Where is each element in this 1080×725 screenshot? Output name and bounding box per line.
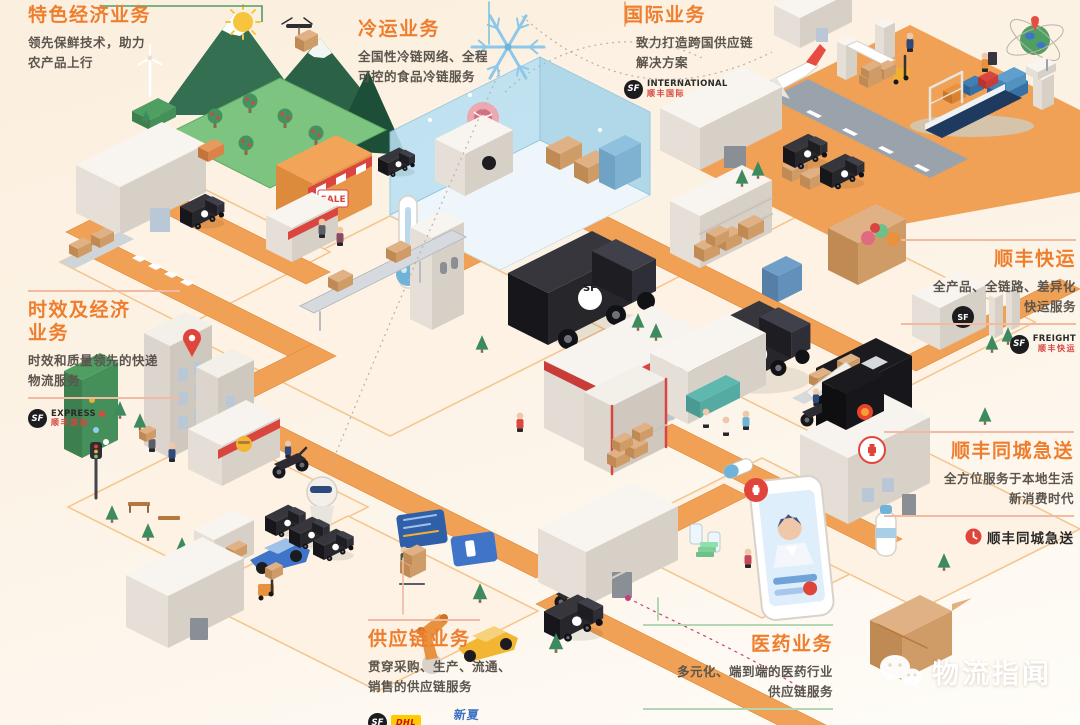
desc-line: 可控的食品冷链服务 xyxy=(358,69,475,84)
label-desc: 致力打造跨国供应链 解决方案 xyxy=(636,33,753,72)
desc-line: 农产品上行 xyxy=(28,55,93,70)
desc-line: 供应链服务 xyxy=(768,684,833,699)
label-intracity-delivery: 顺丰同城急送 全方位服务于本地生活 新消费时代 顺丰同城急送 xyxy=(884,424,1074,547)
label-desc: 多元化、端到端的医药行业 供应链服务 xyxy=(643,662,833,701)
desc-line: 物流服务 xyxy=(28,373,80,388)
label-title: 顺丰快运 xyxy=(901,248,1076,271)
sf-logo-icon: SF xyxy=(624,80,643,99)
desc-line: 解决方案 xyxy=(636,55,688,70)
label-cold-chain: 冷运业务 全国性冷链网络、全程 可控的食品冷链服务 xyxy=(358,18,488,86)
desc-line: 全产品、全链路、差异化 xyxy=(933,279,1076,294)
label-title: 时效及经济 业务 xyxy=(28,299,180,345)
label-pharma: 医药业务 多元化、端到端的医药行业 供应链服务 xyxy=(643,617,833,717)
label-desc: 时效和质量领先的快递 物流服务 xyxy=(28,351,180,390)
sf-logo-icon: SF xyxy=(368,713,387,725)
desc-line: 销售的供应链服务 xyxy=(368,679,472,694)
title-line: 业务 xyxy=(28,322,69,344)
watermark: 物流指闻 xyxy=(878,652,1052,691)
divider-line xyxy=(28,397,180,399)
divider-line xyxy=(901,323,1076,325)
logo-wordmark: INTERNATIONAL 顺丰国际 xyxy=(647,80,728,98)
xinxiahui-logo: 新夏晖 xyxy=(451,706,482,725)
divider-line xyxy=(28,290,180,292)
desc-line: 全方位服务于本地生活 xyxy=(944,471,1074,486)
divider-line xyxy=(368,619,480,621)
title-line: 时效及经济 xyxy=(28,299,131,321)
supply-partner-logos: SF DHL 新夏晖 xyxy=(368,706,480,725)
desc-line: 新消费时代 xyxy=(1009,491,1074,506)
desc-line: 全国性冷链网络、全程 xyxy=(358,49,488,64)
desc-line: 领先保鲜技术，助力 xyxy=(28,35,145,50)
sf-intracity-logo: 顺丰同城急送 xyxy=(884,527,1074,547)
label-fresh-economy: 特色经济业务 领先保鲜技术，助力 农产品上行 xyxy=(28,4,151,72)
scene-text: SF xyxy=(583,283,597,294)
logo-text: 顺丰同城急送 xyxy=(987,527,1074,547)
label-desc: 全产品、全链路、差异化 快运服务 xyxy=(901,277,1076,316)
divider-line xyxy=(643,708,833,710)
desc-line: 时效和质量领先的快递 xyxy=(28,353,158,368)
divider-line xyxy=(884,431,1074,433)
sf-express-logo: SF EXPRESS 顺丰速运 xyxy=(28,409,180,428)
logo-cn: 顺丰快运 xyxy=(1033,345,1076,354)
sf-logo-icon: SF xyxy=(1010,335,1029,354)
sf-logo-icon: SF xyxy=(28,409,47,428)
label-desc: 全国性冷链网络、全程 可控的食品冷链服务 xyxy=(358,47,488,86)
label-title: 特色经济业务 xyxy=(28,4,151,27)
clock-icon xyxy=(965,528,982,545)
label-desc: 领先保鲜技术，助力 农产品上行 xyxy=(28,33,151,72)
label-title: 供应链业务 xyxy=(368,628,480,651)
divider-line xyxy=(884,515,1074,517)
label-title: 顺丰同城急送 xyxy=(884,440,1074,463)
label-desc: 贯穿采购、生产、流通、 销售的供应链服务 xyxy=(368,657,480,696)
dhl-logo: DHL xyxy=(391,715,421,725)
desc-line: 贯穿采购、生产、流通、 xyxy=(368,659,511,674)
sf-international-logo: SF INTERNATIONAL 顺丰国际 xyxy=(624,80,753,99)
divider-line xyxy=(901,239,1076,241)
logo-cn: 顺丰国际 xyxy=(647,90,728,99)
desc-line: 快运服务 xyxy=(1024,299,1076,314)
label-supply-chain: 供应链业务 贯穿采购、生产、流通、 销售的供应链服务 SF DHL 新夏晖 xyxy=(368,612,480,725)
label-title: 国际业务 xyxy=(624,4,753,27)
label-express-economy: 时效及经济 业务 时效和质量领先的快递 物流服务 SF EXPRESS 顺丰速运 xyxy=(28,283,180,428)
label-international: 国际业务 致力打造跨国供应链 解决方案 SF INTERNATIONAL 顺丰国… xyxy=(624,4,753,99)
logo-wordmark: EXPRESS 顺丰速运 xyxy=(51,410,96,428)
label-sf-freight: 顺丰快运 全产品、全链路、差异化 快运服务 SF FREIGHT 顺丰快运 xyxy=(901,232,1076,354)
logo-wordmark: FREIGHT 顺丰快运 xyxy=(1033,335,1076,353)
logo-cn: 顺丰速运 xyxy=(51,419,96,428)
wechat-icon xyxy=(878,653,924,691)
label-title: 冷运业务 xyxy=(358,18,488,41)
label-desc: 全方位服务于本地生活 新消费时代 xyxy=(884,469,1074,508)
watermark-text: 物流指闻 xyxy=(932,652,1052,691)
label-title: 医药业务 xyxy=(643,633,833,656)
divider-line xyxy=(643,624,833,626)
desc-line: 致力打造跨国供应链 xyxy=(636,35,753,50)
desc-line: 多元化、端到端的医药行业 xyxy=(677,664,833,679)
infographic-canvas: SALESFSF 特色经济业务 领先保鲜技术，助力 农产品上行 冷运业务 全国性… xyxy=(0,0,1080,725)
sf-freight-logo: SF FREIGHT 顺丰快运 xyxy=(901,335,1076,354)
